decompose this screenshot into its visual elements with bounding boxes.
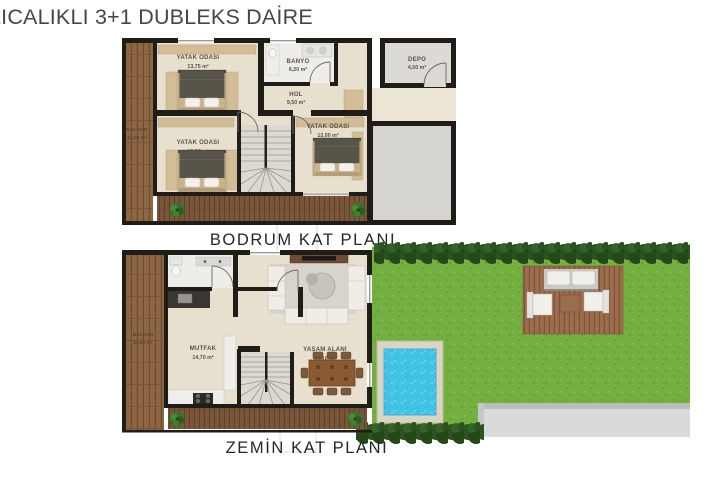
room-area: 13,05 m² [127,135,147,141]
entry-landing [372,88,456,121]
terrace-deck [168,408,367,429]
room-area: 14,70 m² [192,355,213,361]
room-label: BALKON [133,332,154,338]
room-area: 9,50 m² [287,100,305,106]
tv-icon [302,256,336,261]
staircase [241,125,291,192]
gray-terrace-block [371,124,454,223]
basement-caption: BODRUM KAT PLANI [210,231,396,249]
living-room [268,254,365,324]
room-area: 12,00 m² [317,133,338,139]
swimming-pool [377,341,443,423]
terrace-deck [157,196,367,221]
room-label: BANYO [287,59,310,65]
room-area: 13,05 m² [133,340,153,346]
room-label: YATAK ODASI [307,124,350,130]
room-label: BALKON [127,127,148,133]
outdoor-lounge-deck [523,266,623,334]
room-area: 6,20 m² [289,67,307,73]
plant-icon [170,412,185,427]
ground-caption: ZEMİN KAT PLANI [226,438,389,457]
room-area: 4,50 m² [408,65,426,71]
room-area: 34,10 m² [314,356,335,362]
plant-icon [170,203,185,218]
bathroom [168,255,233,288]
page-title: LICALIKLI 3+1 DUBLEKS DAİRE [0,5,313,29]
hedge-row [374,240,690,268]
staircase [241,352,293,405]
garden-path [478,403,690,437]
room-area: 13,75 m² [187,64,208,70]
floorplan-graphic: LICALIKLI 3+1 DUBLEKS DAİRE [0,0,726,485]
room-label: YAŞAM ALANI [303,347,347,353]
room-area: 10,90 m² [187,149,208,155]
room-label: YATAK ODASI [177,140,220,146]
room-label: HOL [289,92,303,98]
bed-icon [178,70,226,112]
floorplan-sheet: LICALIKLI 3+1 DUBLEKS DAİRE [0,0,726,485]
plant-icon [351,203,366,218]
ground-floor-plan: BALKON 13,05 m² MUTFAK 14,70 m² YAŞAM AL… [122,250,372,433]
room-label: MUTFAK [190,346,217,352]
room-label: DEPO [408,57,426,63]
plant-icon [348,412,363,427]
garden [356,240,690,448]
bed-icon [178,150,226,192]
room-label: YATAK ODASI [177,55,220,61]
bed-icon [313,138,361,176]
basement-plan: BALKON 13,05 m² YATAK ODASI 13,75 m² BAN… [122,38,456,225]
